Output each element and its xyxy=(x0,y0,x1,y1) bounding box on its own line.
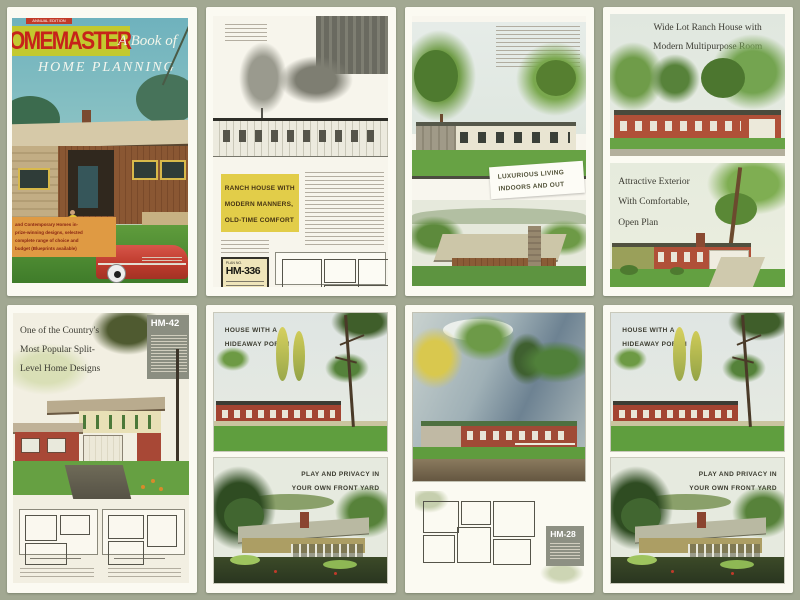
fence xyxy=(515,443,575,445)
window xyxy=(160,160,186,180)
bottom-illustration-photo: Attractive Exterior With Comfortable, Op… xyxy=(610,163,785,287)
photo-cell-luxurious-living[interactable]: LUXURIOUS LIVING INDOORS AND OUT xyxy=(405,7,595,296)
photo-credit-caption xyxy=(142,257,182,265)
headline-line: Level Home Designs xyxy=(20,360,136,379)
photo-cell-ranch-article[interactable]: RANCH HOUSE WITH MODERN MANNERS, OLD-TIM… xyxy=(206,7,396,296)
plan-number-box: PLAN NO. HM-336 xyxy=(221,257,269,287)
stone-chimney xyxy=(528,226,541,266)
sketch-foliage xyxy=(279,56,353,104)
cover-subtitle-line1: A Book of xyxy=(118,33,177,50)
plan-stats xyxy=(550,543,580,561)
plan-number-box: HM-28 xyxy=(546,526,584,566)
window xyxy=(132,160,158,180)
plan-room xyxy=(461,501,491,525)
woman-head xyxy=(70,210,75,215)
tree xyxy=(519,341,586,383)
foliage xyxy=(216,347,250,371)
caption-text xyxy=(20,568,94,580)
garage-door xyxy=(83,435,123,462)
plan-room xyxy=(423,535,455,563)
cover-subtitle-line2: HOME PLANNING xyxy=(38,60,176,76)
chimney xyxy=(697,512,706,528)
flower xyxy=(159,487,163,491)
plan-room xyxy=(324,285,388,287)
book-cover-photo: ANNUAL EDITION OMEMASTER A Book of HOME … xyxy=(12,18,188,283)
driveway xyxy=(413,459,586,481)
top-illustration-photo: HOUSE WITH A HIDEAWAY PORCH xyxy=(610,312,785,452)
plan-room xyxy=(493,539,531,565)
shuttered-windows xyxy=(83,415,157,429)
plan-number: HM-42 xyxy=(151,318,189,330)
color-spread-photo: LUXURIOUS LIVING INDOORS AND OUT xyxy=(412,16,587,286)
grass-highlight xyxy=(720,560,754,569)
masthead-title: OMEMASTER xyxy=(12,26,118,56)
blurb-line: budget (Blueprints available) xyxy=(15,245,113,253)
plan-room xyxy=(60,515,90,535)
porch-railing xyxy=(291,544,363,557)
plan-room xyxy=(423,501,459,533)
grass-highlight xyxy=(230,555,260,565)
blurb-line: prize-winning designs, selected xyxy=(15,229,113,237)
bottom-illustration-photo: PLAY AND PRIVACY IN YOUR OWN FRONT YARD xyxy=(213,457,388,585)
plan-room xyxy=(108,515,144,539)
tree-shadow xyxy=(414,50,458,102)
walkway xyxy=(611,421,784,426)
plan-room xyxy=(147,515,177,547)
page-headline: One of the Country's Most Popular Split-… xyxy=(20,322,136,380)
chimney xyxy=(300,512,309,528)
plan-stats xyxy=(226,281,264,287)
flower xyxy=(151,479,155,483)
window xyxy=(47,438,66,453)
floor-plan-drawing xyxy=(19,509,98,556)
photo-cell-split-level[interactable]: One of the Country's Most Popular Split-… xyxy=(7,305,197,594)
window-row xyxy=(658,252,708,262)
plan-room xyxy=(493,501,535,537)
photo-cell-book-cover[interactable]: ANNUAL EDITION OMEMASTER A Book of HOME … xyxy=(7,7,197,296)
headline-line: RANCH HOUSE WITH xyxy=(225,181,295,197)
flower xyxy=(334,572,337,575)
caption-text xyxy=(225,24,267,42)
fence xyxy=(416,262,450,264)
window xyxy=(18,168,50,190)
sketch-ground-line xyxy=(213,156,388,163)
window-row xyxy=(222,410,335,418)
plan-number: HM-28 xyxy=(550,529,584,540)
flower xyxy=(141,485,145,489)
plan-room xyxy=(457,527,491,563)
plan-stats xyxy=(151,335,187,373)
headline-line: Most Popular Split- xyxy=(20,341,136,360)
floor-plan-drawing xyxy=(275,252,386,285)
plan-room xyxy=(282,259,322,287)
top-illustration-photo: HOUSE WITH A HIDEAWAY PORCH xyxy=(213,312,388,452)
blurb-line: and Contemporary Homes in- xyxy=(15,221,113,229)
house-illustration-photo xyxy=(412,312,587,482)
poplar-tree xyxy=(293,331,305,381)
front-door xyxy=(78,166,98,208)
poplar-tree xyxy=(690,331,702,381)
photo-cell-wide-lot-ranch[interactable]: Wide Lot Ranch House with Modern Multipu… xyxy=(603,7,793,296)
brick-wing xyxy=(15,432,79,462)
car-hubcap xyxy=(114,271,121,278)
cover-blurb-box: and Contemporary Homes in- prize-winning… xyxy=(12,217,116,257)
article-headline-block: RANCH HOUSE WITH MODERN MANNERS, OLD-TIM… xyxy=(221,174,299,232)
plan-number: HM-336 xyxy=(226,266,264,278)
plan-room xyxy=(25,515,57,541)
split-level-page-photo: One of the Country's Most Popular Split-… xyxy=(13,313,189,584)
tree-shadow xyxy=(536,60,576,96)
blurb-line: complete range of choice and xyxy=(15,237,113,245)
brick-wall xyxy=(137,433,161,462)
poplar-tree xyxy=(276,327,289,381)
plan-room xyxy=(358,259,388,287)
aerial-house-illustration xyxy=(412,200,587,286)
body-text xyxy=(305,172,384,246)
article-page-photo: RANCH HOUSE WITH MODERN MANNERS, OLD-TIM… xyxy=(213,16,388,287)
foliage xyxy=(613,347,647,371)
plan-number-box: HM-42 xyxy=(147,315,189,379)
road xyxy=(610,149,785,156)
walkway xyxy=(214,421,387,426)
headline-band: LUXURIOUS LIVING INDOORS AND OUT xyxy=(489,161,585,199)
window-row xyxy=(620,121,741,131)
floor-plans-section xyxy=(17,509,185,582)
floor-plan-drawing: HM-28 xyxy=(415,491,585,586)
stone-wall xyxy=(416,126,456,152)
headline-line: One of the Country's xyxy=(20,322,136,341)
sketch-window-row xyxy=(223,130,378,142)
window-row xyxy=(619,410,732,418)
plan-caption xyxy=(30,558,80,562)
tree xyxy=(650,54,700,104)
edition-tag: ANNUAL EDITION xyxy=(26,18,72,24)
caption-text xyxy=(221,240,269,253)
headline-line: With Comfortable, xyxy=(618,192,689,212)
bottom-illustration-photo: PLAY AND PRIVACY IN YOUR OWN FRONT YARD xyxy=(610,457,785,585)
garage-door xyxy=(749,119,775,139)
window-row xyxy=(467,431,570,440)
tree xyxy=(136,74,188,124)
photo-cell-hideaway-porch[interactable]: HOUSE WITH A HIDEAWAY PORCH PLAY AND PRI… xyxy=(206,305,396,594)
top-illustration-photo: Wide Lot Ranch House with Modern Multipu… xyxy=(610,14,785,156)
caption-text xyxy=(108,568,182,580)
floor-plan-drawing xyxy=(102,509,185,556)
photo-grid: ANNUAL EDITION OMEMASTER A Book of HOME … xyxy=(0,0,800,600)
plan-caption xyxy=(114,558,164,562)
headline-line: MODERN MANNERS, xyxy=(225,197,295,213)
flower xyxy=(274,570,277,573)
porch-railing xyxy=(688,544,760,557)
grass-highlight xyxy=(323,560,357,569)
tree xyxy=(453,315,515,361)
upper-story xyxy=(79,411,161,433)
plan-room xyxy=(324,259,356,283)
headline-line: OLD-TIME COMFORT xyxy=(225,213,295,229)
chimney xyxy=(696,233,705,247)
tree-shadow xyxy=(701,58,745,98)
tree-trunk xyxy=(176,349,179,479)
window-row xyxy=(460,132,571,143)
headline-line: Attractive Exterior xyxy=(618,172,689,192)
headline-line: PLAY AND PRIVACY IN xyxy=(292,468,380,483)
driveway xyxy=(65,465,131,499)
house-wing xyxy=(421,426,461,447)
headline-line: Open Plan xyxy=(618,213,689,233)
headline-line: PLAY AND PRIVACY IN xyxy=(689,468,777,483)
lawn xyxy=(412,266,587,286)
window xyxy=(21,438,40,453)
page-headline: Attractive Exterior With Comfortable, Op… xyxy=(618,172,689,233)
photo-cell-floor-plan-page[interactable]: HM-28 xyxy=(405,305,595,594)
photo-cell-hideaway-porch-duplicate[interactable]: HOUSE WITH A HIDEAWAY PORCH PLAY AND PRI… xyxy=(603,305,793,594)
